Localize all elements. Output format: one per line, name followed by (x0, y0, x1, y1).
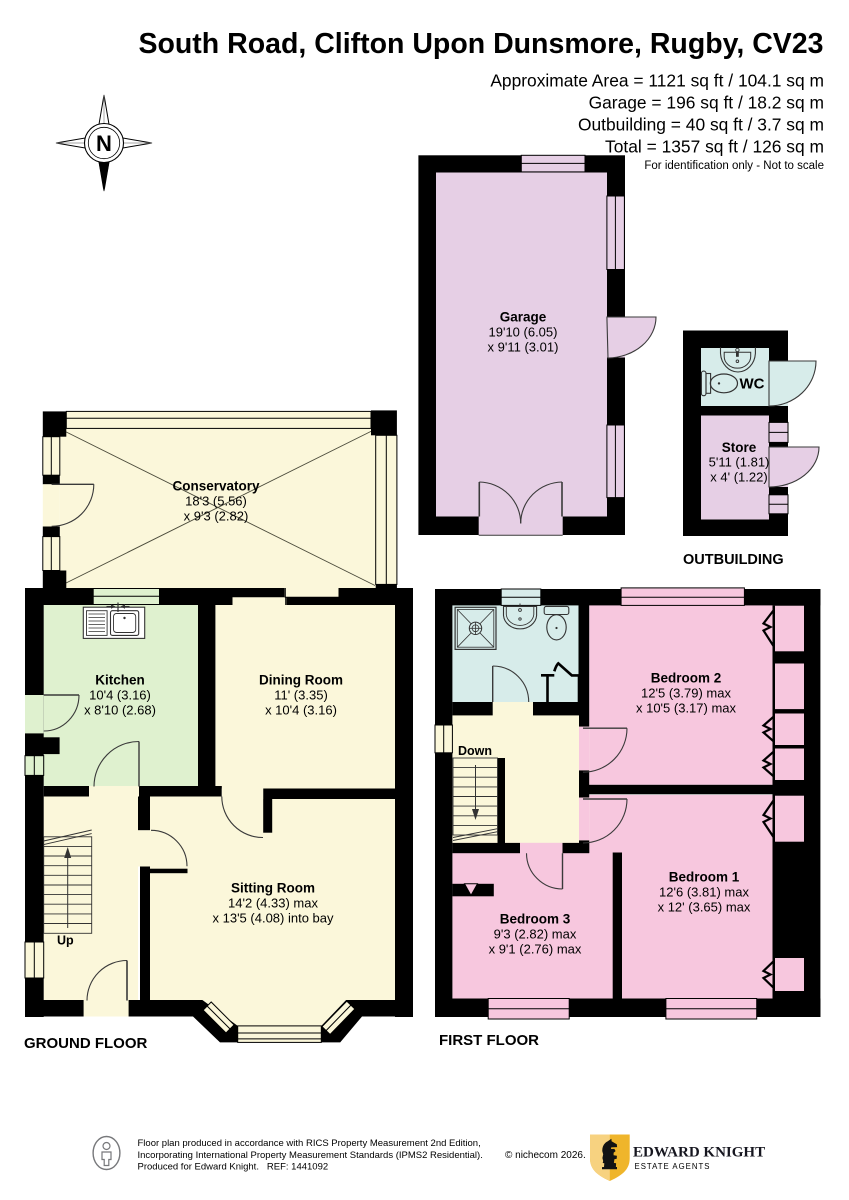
svg-text:South Road, Clifton Upon Dunsm: South Road, Clifton Upon Dunsmore, Rugby… (138, 28, 823, 60)
svg-text:Bedroom 2: Bedroom 2 (651, 671, 722, 686)
svg-text:Dining Room: Dining Room (259, 673, 343, 688)
svg-text:Bedroom 3: Bedroom 3 (500, 912, 571, 927)
svg-text:FIRST FLOOR: FIRST FLOOR (439, 1032, 539, 1049)
svg-text:EDWARD KNIGHT: EDWARD KNIGHT (633, 1145, 765, 1161)
svg-text:ESTATE AGENTS: ESTATE AGENTS (635, 1162, 711, 1171)
svg-text:12'6 (3.81) max: 12'6 (3.81) max (659, 885, 749, 900)
svg-text:GROUND FLOOR: GROUND FLOOR (24, 1035, 147, 1052)
svg-text:Total = 1357 sq ft / 126 sq m: Total = 1357 sq ft / 126 sq m (605, 137, 824, 157)
svg-text:Approximate Area = 1121 sq ft: Approximate Area = 1121 sq ft / 104.1 sq… (490, 71, 824, 91)
svg-text:Produced for Edward Knight.: Produced for Edward Knight. REF: 1441092 (138, 1162, 329, 1173)
svg-text:18'3 (5.56): 18'3 (5.56) (185, 494, 247, 509)
svg-text:Bedroom 1: Bedroom 1 (669, 870, 740, 885)
svg-text:Up: Up (57, 934, 74, 948)
svg-text:5'11 (1.81): 5'11 (1.81) (709, 455, 770, 470)
svg-text:WC: WC (740, 376, 765, 393)
svg-text:x 12' (3.65) max: x 12' (3.65) max (658, 900, 751, 915)
svg-text:N: N (96, 131, 112, 156)
svg-text:Sitting Room: Sitting Room (231, 881, 315, 896)
svg-text:Down: Down (458, 744, 492, 758)
svg-text:x 9'3 (2.82): x 9'3 (2.82) (184, 509, 249, 524)
svg-text:Garage = 196 sq ft / 18.2 sq m: Garage = 196 sq ft / 18.2 sq m (589, 93, 824, 113)
svg-text:11' (3.35): 11' (3.35) (274, 688, 328, 703)
svg-text:12'5 (3.79) max: 12'5 (3.79) max (641, 686, 731, 701)
svg-text:For identification only - Not: For identification only - Not to scale (644, 160, 824, 172)
svg-text:x 9'11 (3.01): x 9'11 (3.01) (488, 340, 559, 355)
svg-text:Kitchen: Kitchen (95, 673, 145, 688)
svg-text:10'4 (3.16): 10'4 (3.16) (89, 688, 151, 703)
svg-text:9'3 (2.82) max: 9'3 (2.82) max (494, 927, 577, 942)
svg-text:19'10 (6.05): 19'10 (6.05) (489, 325, 558, 340)
svg-text:x 13'5 (4.08) into bay: x 13'5 (4.08) into bay (213, 911, 334, 926)
svg-text:Store: Store (722, 440, 757, 455)
svg-text:Conservatory: Conservatory (172, 479, 260, 494)
svg-text:x 9'1 (2.76) max: x 9'1 (2.76) max (489, 942, 582, 957)
svg-text:x 4' (1.22): x 4' (1.22) (710, 470, 767, 485)
svg-text:x 8'10 (2.68): x 8'10 (2.68) (84, 703, 156, 718)
svg-text:Floor plan produced in accorda: Floor plan produced in accordance with R… (138, 1138, 481, 1149)
svg-text:Incorporating International Pr: Incorporating International Property Mea… (138, 1150, 483, 1161)
svg-text:Outbuilding = 40 sq ft / 3.7 s: Outbuilding = 40 sq ft / 3.7 sq m (578, 115, 824, 135)
svg-text:14'2 (4.33) max: 14'2 (4.33) max (228, 896, 318, 911)
svg-text:OUTBUILDING: OUTBUILDING (683, 552, 784, 568)
svg-text:© nichecom 2026.: © nichecom 2026. (505, 1150, 586, 1161)
svg-text:x 10'4 (3.16): x 10'4 (3.16) (265, 703, 337, 718)
svg-text:x 10'5 (3.17) max: x 10'5 (3.17) max (636, 701, 737, 716)
svg-text:Garage: Garage (500, 310, 547, 325)
